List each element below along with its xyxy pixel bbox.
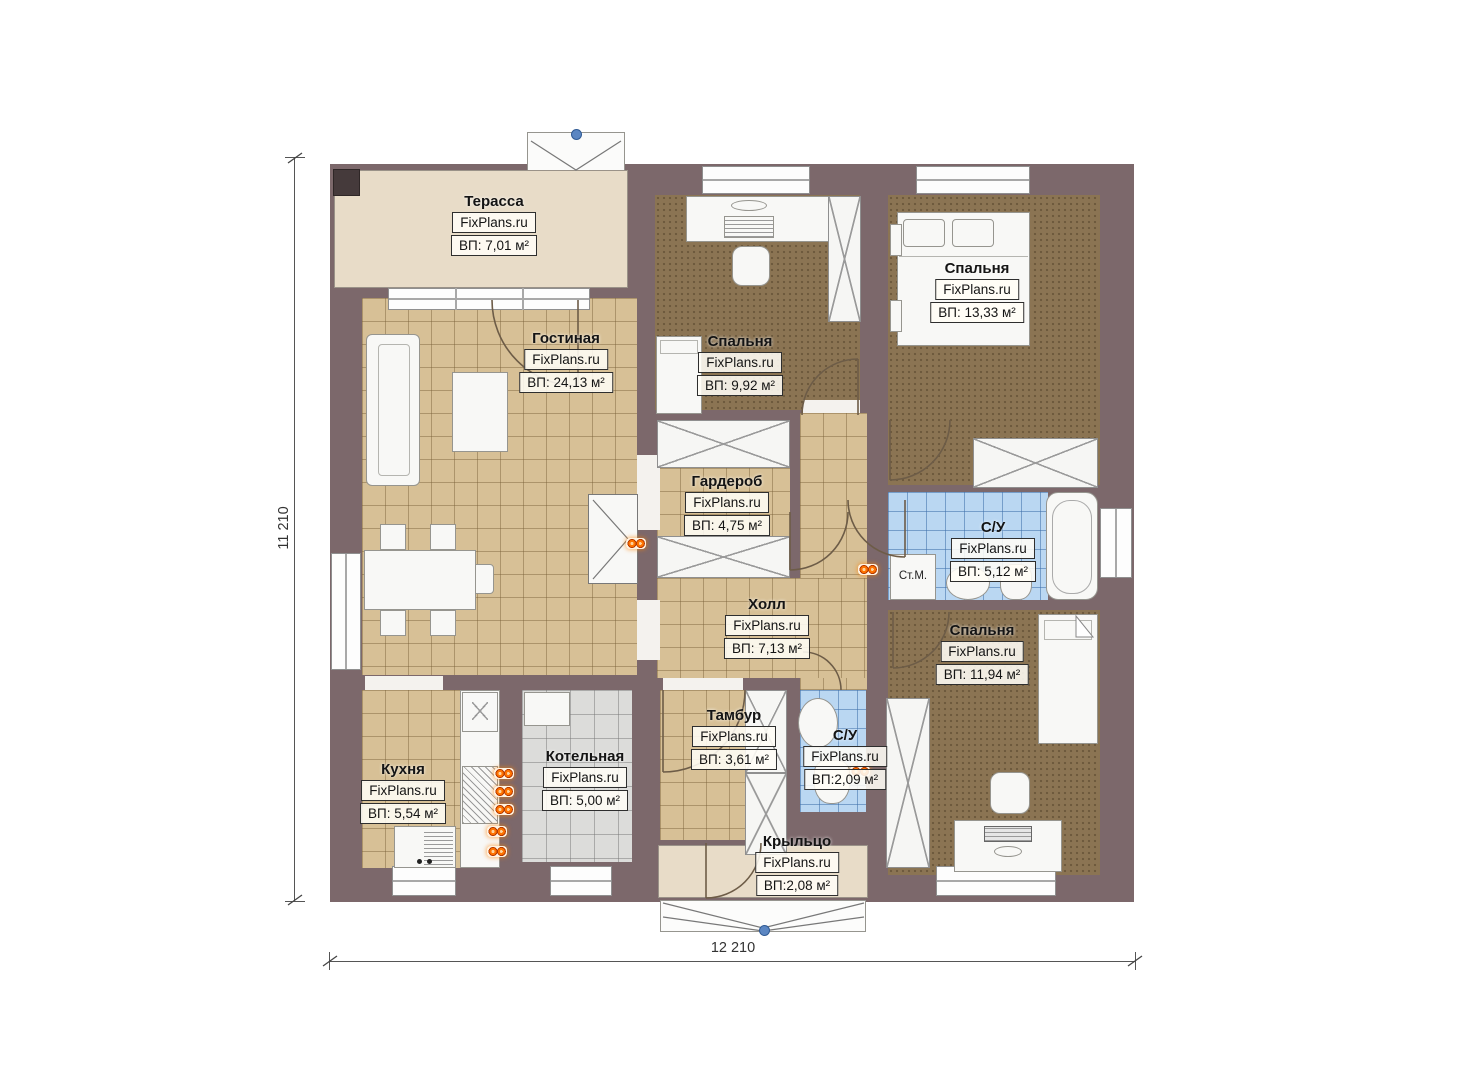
- pillow: [903, 219, 945, 247]
- brand-badge: FixPlans.ru: [543, 767, 627, 788]
- chair: [380, 610, 406, 636]
- brand-badge: FixPlans.ru: [935, 279, 1019, 300]
- dimension-tick: [1135, 952, 1136, 970]
- window: [1100, 508, 1132, 578]
- room-label-hall: Холл FixPlans.ru ВП: 7,13 м²: [724, 596, 810, 659]
- area-badge: ВП: 3,61 м²: [691, 749, 777, 770]
- room-label-porch: Крыльцо FixPlans.ru ВП:2,08 м²: [755, 833, 839, 896]
- power-outlet: [626, 538, 646, 549]
- room-label-terrace: Терасса FixPlans.ru ВП: 7,01 м²: [451, 193, 537, 256]
- wardrobe: [828, 196, 861, 322]
- entry-marker: [571, 129, 582, 140]
- chair: [732, 246, 770, 286]
- room-title: Тамбур: [691, 707, 777, 724]
- brand-badge: FixPlans.ru: [951, 538, 1035, 559]
- brand-badge: FixPlans.ru: [361, 780, 445, 801]
- room-label-kitchen: Кухня FixPlans.ru ВП: 5,54 м²: [360, 761, 446, 824]
- chair: [380, 524, 406, 550]
- power-outlet: [494, 804, 514, 815]
- nightstand: [890, 224, 902, 256]
- power-outlet: [494, 786, 514, 797]
- dimension-tick: [329, 952, 330, 970]
- room-title: Терасса: [451, 193, 537, 210]
- window: [331, 553, 361, 670]
- wall-opening: [637, 600, 660, 660]
- dimension-line-vertical: [294, 158, 295, 902]
- room-title: Котельная: [542, 748, 628, 765]
- room-label-bedroom1: Спальня FixPlans.ru ВП: 9,92 м²: [697, 333, 783, 396]
- washing-machine: Ст.М.: [890, 554, 936, 600]
- monitor-stand: [994, 846, 1022, 857]
- door-opening-tambour: [663, 678, 743, 690]
- room-label-bedroom2: Спальня FixPlans.ru ВП: 13,33 м²: [930, 260, 1024, 323]
- pillow: [952, 219, 994, 247]
- room-title: Спальня: [697, 333, 783, 350]
- area-badge: ВП: 5,00 м²: [542, 790, 628, 811]
- door-opening-kitchen: [365, 676, 443, 690]
- power-outlet: [487, 826, 507, 837]
- sofa-seat: [378, 344, 410, 476]
- dimension-label-vertical: 11 210: [276, 488, 292, 568]
- dimension-line-horizontal: [330, 961, 1136, 962]
- dimension-tick: [285, 901, 305, 902]
- room-label-boiler: Котельная FixPlans.ru ВП: 5,00 м²: [542, 748, 628, 811]
- room-label-garderob: Гардероб FixPlans.ru ВП: 4,75 м²: [684, 473, 770, 536]
- wardrobe: [657, 420, 790, 468]
- wardrobe: [657, 536, 790, 578]
- dimension-label-horizontal: 12 210: [688, 940, 778, 956]
- room-title: Спальня: [930, 260, 1024, 277]
- brand-badge: FixPlans.ru: [755, 852, 839, 873]
- window: [702, 166, 810, 194]
- brand-badge: FixPlans.ru: [685, 492, 769, 513]
- boiler-unit: [524, 692, 570, 726]
- sink-cross-icon: [472, 702, 488, 720]
- room-label-bath1: С/У FixPlans.ru ВП: 5,12 м²: [950, 519, 1036, 582]
- brand-badge: FixPlans.ru: [692, 726, 776, 747]
- area-badge: ВП: 11,94 м²: [936, 664, 1029, 685]
- chimney: [333, 169, 360, 196]
- room-title: Холл: [724, 596, 810, 613]
- area-badge: ВП: 4,75 м²: [684, 515, 770, 536]
- brand-badge: FixPlans.ru: [452, 212, 536, 233]
- stove: [462, 766, 498, 824]
- area-badge: ВП: 13,33 м²: [930, 302, 1024, 323]
- window: [550, 866, 612, 896]
- power-outlet: [494, 768, 514, 779]
- area-badge: ВП: 24,13 м²: [519, 372, 613, 393]
- brand-badge: FixPlans.ru: [940, 641, 1024, 662]
- room-label-living: Гостиная FixPlans.ru ВП: 24,13 м²: [519, 330, 613, 393]
- area-badge: ВП:2,09 м²: [804, 769, 886, 790]
- pillow: [660, 340, 698, 354]
- room-label-tambour: Тамбур FixPlans.ru ВП: 3,61 м²: [691, 707, 777, 770]
- nightstand: [890, 300, 902, 332]
- room-title: Крыльцо: [755, 833, 839, 850]
- room-title: Спальня: [936, 622, 1029, 639]
- floor-plan-canvas: Ст.М.: [0, 0, 1474, 1080]
- window: [916, 166, 1030, 194]
- door-mullion: [455, 288, 457, 310]
- blanket-line: [899, 256, 1028, 258]
- desk-lamp: [731, 200, 767, 211]
- brand-badge: FixPlans.ru: [524, 349, 608, 370]
- bathtub-basin: [1052, 500, 1092, 594]
- room-title: С/У: [803, 727, 887, 744]
- area-badge: ВП: 7,13 м²: [724, 638, 810, 659]
- area-badge: ВП: 5,12 м²: [950, 561, 1036, 582]
- knob: [427, 859, 432, 864]
- door-mullion: [522, 288, 524, 310]
- dimension-tick: [285, 157, 305, 158]
- room-label-bath2: С/У FixPlans.ru ВП:2,09 м²: [803, 727, 887, 790]
- chair: [430, 610, 456, 636]
- door-opening-bedroom1: [803, 400, 860, 413]
- monitor: [984, 826, 1032, 842]
- brand-badge: FixPlans.ru: [725, 615, 809, 636]
- area-badge: ВП: 7,01 м²: [451, 235, 537, 256]
- dining-table: [364, 550, 476, 610]
- power-outlet: [487, 846, 507, 857]
- wardrobe: [886, 698, 930, 868]
- knob: [417, 859, 422, 864]
- room-title: Гостиная: [519, 330, 613, 347]
- chair: [430, 524, 456, 550]
- chair: [990, 772, 1030, 814]
- power-outlet: [858, 564, 878, 575]
- area-badge: ВП:2,08 м²: [756, 875, 838, 896]
- terrace-sliding-door: [388, 288, 590, 310]
- window: [392, 866, 456, 896]
- brand-badge: FixPlans.ru: [803, 746, 887, 767]
- washing-machine-label: Ст.М.: [891, 570, 935, 582]
- room-title: С/У: [950, 519, 1036, 536]
- area-badge: ВП: 5,54 м²: [360, 803, 446, 824]
- room-label-bedroom3: Спальня FixPlans.ru ВП: 11,94 м²: [936, 622, 1029, 685]
- brand-badge: FixPlans.ru: [698, 352, 782, 373]
- coffee-table: [452, 372, 508, 452]
- entry-marker: [759, 925, 770, 936]
- area-badge: ВП: 9,92 м²: [697, 375, 783, 396]
- dresser: [724, 216, 774, 238]
- room-title: Кухня: [360, 761, 446, 778]
- room-title: Гардероб: [684, 473, 770, 490]
- wardrobe: [973, 438, 1098, 488]
- pillow: [1044, 620, 1092, 640]
